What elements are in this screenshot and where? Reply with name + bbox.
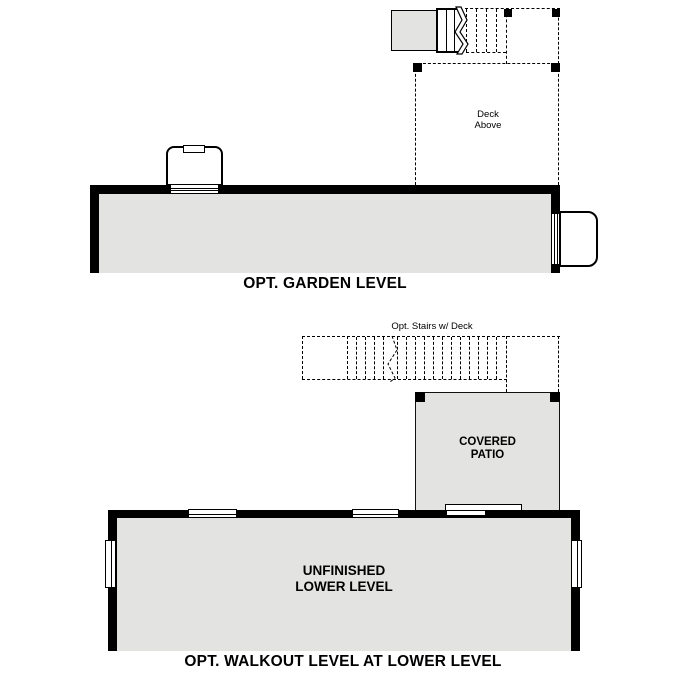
- opt-stairs-tread-dashed: [433, 337, 434, 379]
- garden-wall-left: [90, 185, 99, 273]
- window-well-right: [559, 211, 598, 267]
- opt-stairs-tread-dashed: [451, 337, 452, 379]
- opt-stairs-tread-dashed: [496, 337, 497, 379]
- deck-outline-line: [415, 64, 416, 185]
- opt-stairs-tread-dashed: [469, 337, 470, 379]
- covered-patio-label: COVERED PATIO: [430, 436, 545, 461]
- opt-stairs-label: Opt. Stairs w/ Deck: [362, 321, 502, 332]
- opt-stairs-outline-line: [302, 336, 560, 337]
- stair-tread-line: [446, 10, 447, 51]
- walkout-level-title: OPT. WALKOUT LEVEL AT LOWER LEVEL: [143, 653, 543, 671]
- deck-stair-landing: [391, 10, 437, 51]
- deck-post: [413, 63, 422, 72]
- opt-stairs-tread-dashed: [406, 337, 407, 379]
- deck-stair-tread-dashed: [476, 9, 477, 52]
- garden-wall-right-upper: [551, 185, 560, 213]
- garden-room-fill: [99, 194, 551, 273]
- lower-window-top-1: [188, 509, 237, 518]
- opt-stairs-outline-line: [347, 336, 348, 379]
- patio-post-left: [415, 392, 425, 402]
- opt-stairs-tread-dashed: [374, 337, 375, 379]
- opt-stairs-outline-line: [302, 379, 507, 380]
- deck-above-label: Deck Above: [455, 109, 521, 131]
- stair-break-line: [384, 333, 400, 383]
- garden-wall-top: [90, 185, 560, 194]
- opt-stairs-tread-dashed: [478, 337, 479, 379]
- deck-outline-line: [465, 8, 560, 9]
- opt-stairs-tread-dashed: [442, 337, 443, 379]
- lower-level-room-label: UNFINISHED LOWER LEVEL: [244, 563, 444, 595]
- deck-post: [552, 9, 560, 17]
- deck-outline-line: [558, 64, 559, 185]
- opt-stairs-tread-dashed: [415, 337, 416, 379]
- lower-window-top-2: [352, 509, 399, 518]
- opt-stairs-outline-line: [302, 336, 303, 379]
- opt-stairs-tread-dashed: [356, 337, 357, 379]
- opt-stairs-tread-dashed: [460, 337, 461, 379]
- window-well-ladder: [183, 145, 205, 153]
- opt-stairs-tread-dashed: [424, 337, 425, 379]
- floorplan-canvas: Deck Above OPT. GARDEN LEVEL Opt. Stairs…: [0, 0, 687, 687]
- opt-stairs-outline-line: [506, 336, 507, 392]
- lower-window-right: [571, 540, 582, 588]
- garden-level-title: OPT. GARDEN LEVEL: [165, 275, 485, 293]
- deck-stair-tread-dashed: [486, 9, 487, 52]
- sliding-door-panel-left: [446, 510, 486, 516]
- lower-window-left: [105, 540, 116, 588]
- stair-break-line: [452, 5, 470, 55]
- opt-stairs-tread-dashed: [365, 337, 366, 379]
- deck-outline-line: [466, 52, 506, 53]
- opt-stairs-tread-dashed: [487, 337, 488, 379]
- opt-stairs-outline-line: [558, 336, 559, 392]
- lower-wall-top: [108, 510, 580, 518]
- garden-wall-right-lower: [551, 265, 560, 273]
- garden-window-right: [551, 213, 560, 265]
- deck-post: [551, 63, 560, 72]
- deck-post: [504, 9, 512, 17]
- deck-stair-tread-dashed: [496, 9, 497, 52]
- garden-window-top: [170, 184, 219, 194]
- deck-outline-line: [506, 9, 507, 64]
- deck-outline-line: [413, 63, 560, 64]
- patio-post-right: [550, 392, 560, 402]
